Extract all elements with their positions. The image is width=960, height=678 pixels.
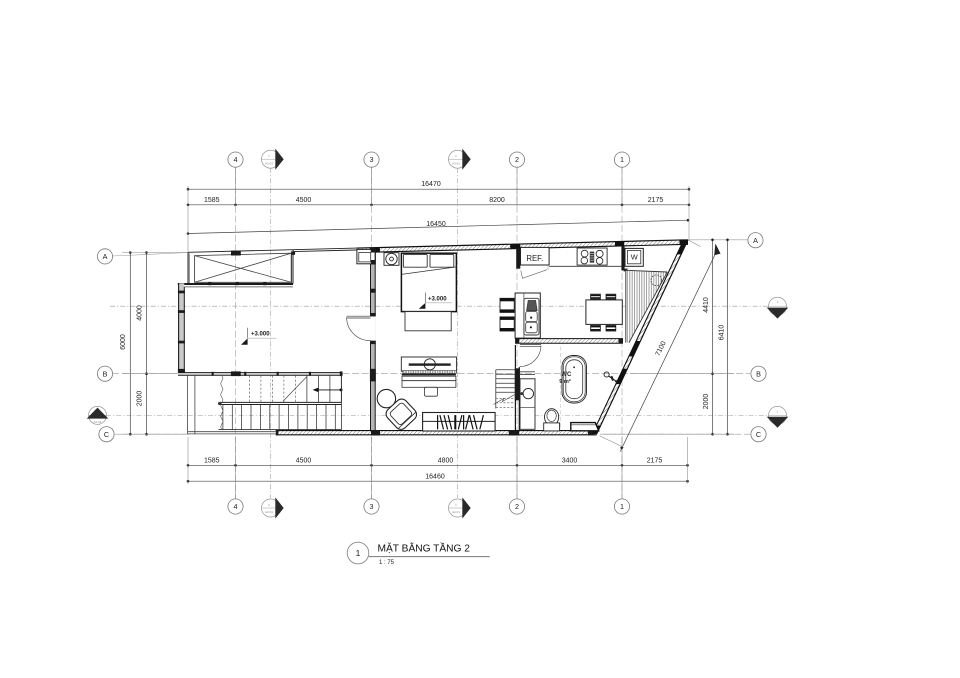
svg-text:3: 3 <box>370 155 374 164</box>
svg-text:4800: 4800 <box>438 458 454 465</box>
svg-text:16450: 16450 <box>426 221 446 228</box>
svg-text:1: 1 <box>620 155 624 164</box>
svg-text:2: 2 <box>515 155 519 164</box>
svg-text:B: B <box>103 369 108 378</box>
svg-text:1: 1 <box>620 502 624 511</box>
svg-text:4000: 4000 <box>136 305 143 321</box>
svg-text:1: 1 <box>356 548 361 558</box>
svg-text:A2-01: A2-01 <box>452 510 460 514</box>
svg-text:+3.000: +3.000 <box>428 297 447 303</box>
svg-text:WC: WC <box>561 372 572 378</box>
svg-text:A: A <box>103 252 108 261</box>
svg-text:2175: 2175 <box>647 458 663 465</box>
svg-text:REF.: REF. <box>526 254 543 263</box>
svg-text:3400: 3400 <box>562 458 578 465</box>
svg-text:+3.000: +3.000 <box>251 331 270 337</box>
svg-text:6410: 6410 <box>719 325 726 341</box>
svg-text:B: B <box>756 369 761 378</box>
svg-text:16470: 16470 <box>421 181 441 188</box>
svg-text:A2-01: A2-01 <box>452 161 460 165</box>
svg-text:4: 4 <box>234 155 238 164</box>
svg-text:A2-01: A2-01 <box>93 420 101 424</box>
svg-text:1 : 75: 1 : 75 <box>379 560 395 566</box>
svg-text:4500: 4500 <box>296 197 312 204</box>
svg-text:8200: 8200 <box>489 197 505 204</box>
svg-text:A: A <box>753 236 758 245</box>
svg-text:1585: 1585 <box>204 197 220 204</box>
svg-text:C: C <box>104 430 109 439</box>
svg-text:9 m²: 9 m² <box>559 378 571 385</box>
svg-text:4410: 4410 <box>703 297 710 313</box>
svg-text:2175: 2175 <box>648 197 664 204</box>
svg-text:2: 2 <box>515 502 519 511</box>
svg-text:A2-01: A2-01 <box>265 161 273 165</box>
svg-text:A2-01: A2-01 <box>265 510 273 514</box>
svg-text:2000: 2000 <box>136 391 143 407</box>
svg-text:3: 3 <box>370 502 374 511</box>
svg-text:2000: 2000 <box>703 394 710 410</box>
svg-text:W: W <box>631 253 638 262</box>
svg-text:16460: 16460 <box>425 474 445 481</box>
svg-text:C: C <box>756 430 761 439</box>
svg-text:4500: 4500 <box>296 458 312 465</box>
svg-text:MẶT BẰNG TẦNG 2: MẶT BẰNG TẦNG 2 <box>378 542 471 555</box>
svg-text:1585: 1585 <box>204 458 220 465</box>
svg-text:4: 4 <box>234 502 238 511</box>
svg-text:6000: 6000 <box>120 334 127 350</box>
